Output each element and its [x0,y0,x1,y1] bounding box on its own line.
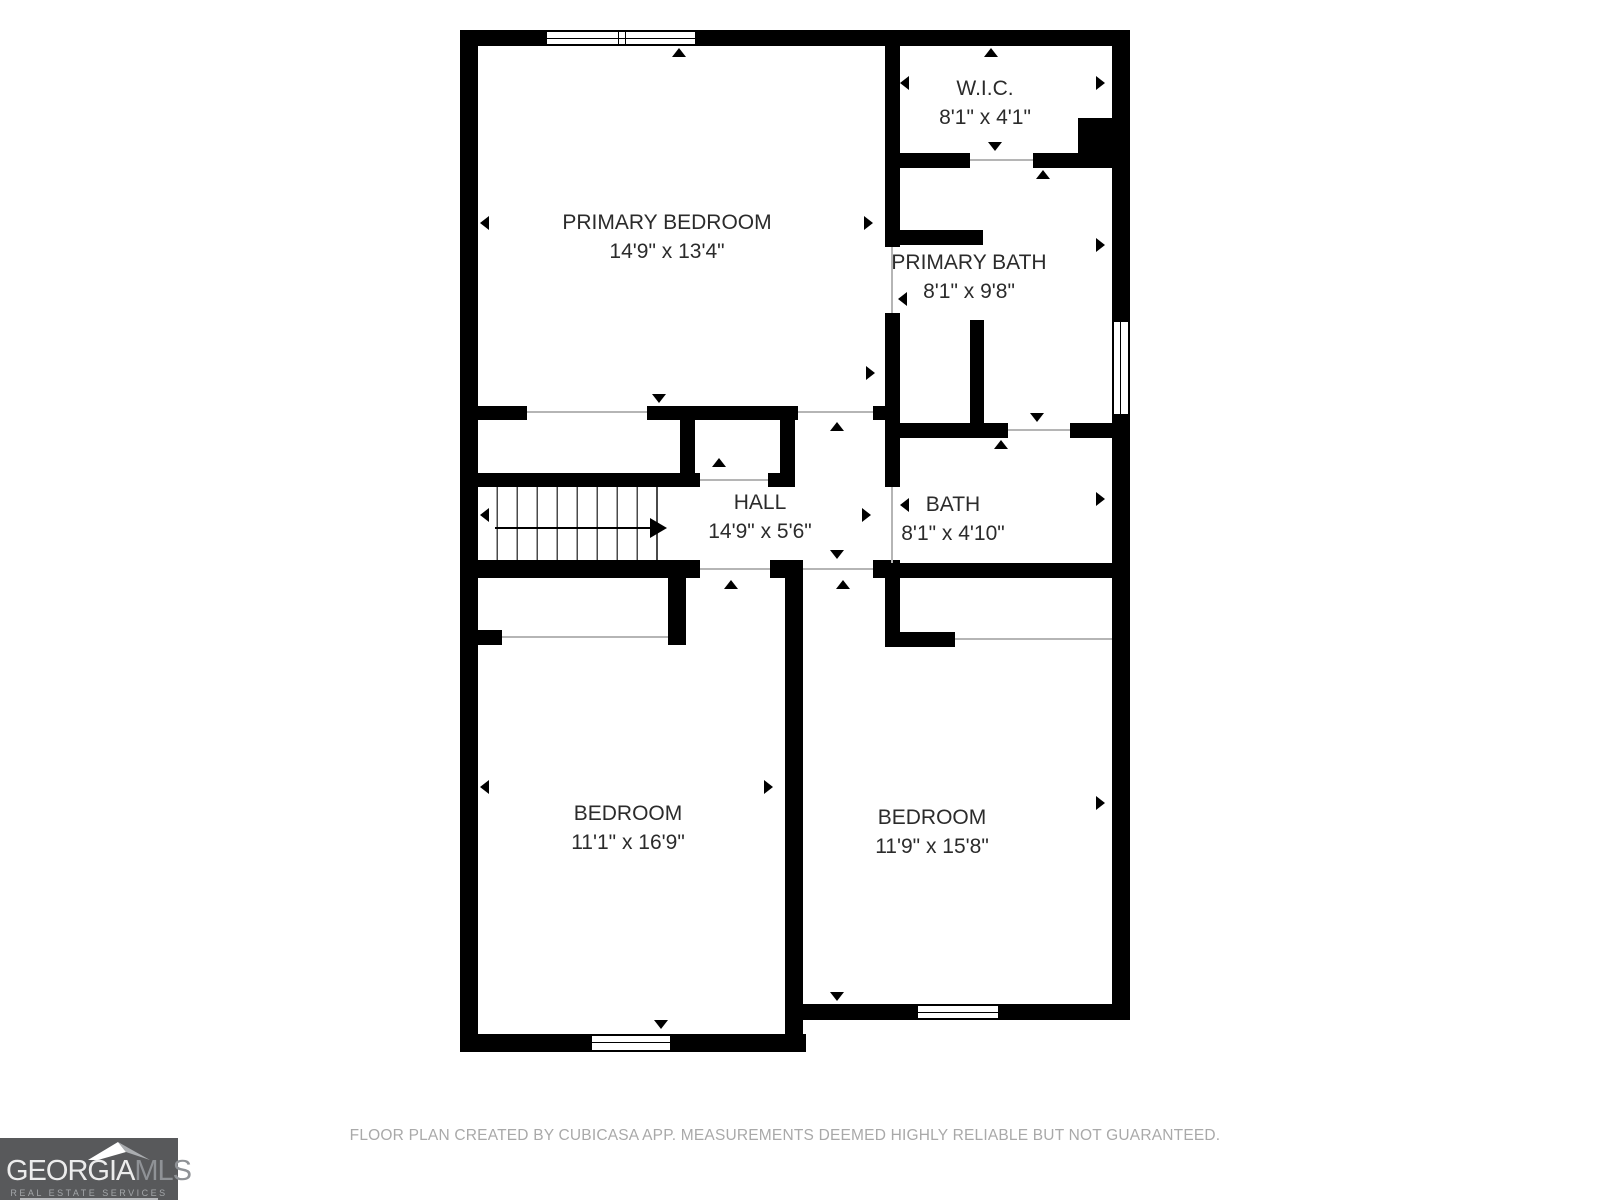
door-swing-icon [866,366,875,380]
floor-plan: PRIMARY BEDROOM 14'9" x 13'4" W.I.C. 8'1… [0,0,1600,1200]
room-dimensions: 8'1" x 4'1" [939,103,1031,132]
wall [460,630,502,645]
window [590,1034,672,1052]
wall [900,230,983,245]
wall [1070,423,1112,438]
wall [768,473,795,487]
wall [885,46,900,247]
wall [885,313,900,487]
wall [697,30,1130,46]
wall [478,473,700,487]
door-opening [955,638,1112,640]
wall-block [1078,118,1112,168]
door-swing-icon [1096,238,1105,252]
room-label-bedroom-left: BEDROOM 11'1" x 16'9" [571,799,685,857]
wall [885,423,1008,438]
stairs-direction-arrow [495,527,653,529]
door-swing-icon [830,550,844,559]
disclaimer-text: FLOOR PLAN CREATED BY CUBICASA APP. MEAS… [0,1127,1570,1145]
wall [1112,30,1130,1020]
door-swing-icon [764,780,773,794]
door-opening [803,568,873,570]
logo-brand-secondary: MLS [134,1155,191,1187]
room-label-wic: W.I.C. 8'1" x 4'1" [939,74,1031,132]
wall [885,153,970,168]
wall [900,563,1112,578]
room-label-hall: HALL 14'9" x 5'6" [708,488,812,546]
room-dimensions: 14'9" x 13'4" [562,237,771,266]
door-swing-icon [480,508,489,522]
door-swing-icon [994,440,1008,449]
wall [647,406,798,420]
door-opening [798,411,873,413]
logo-brand-text: GEORGIAMLS [6,1156,191,1186]
staircase [478,487,658,560]
door-opening [700,479,768,481]
room-name: PRIMARY BATH [891,248,1046,277]
door-swing-icon [724,580,738,589]
wall [460,30,545,46]
room-name: PRIMARY BEDROOM [562,208,771,237]
stairs-direction-arrow-head [650,518,667,538]
door-swing-icon [830,422,844,431]
logo-tagline: REAL ESTATE SERVICES [0,1188,178,1198]
room-dimensions: 11'9" x 15'8" [875,832,989,861]
door-opening [502,636,668,638]
room-dimensions: 11'1" x 16'9" [571,828,685,857]
wall [970,320,984,423]
door-opening [891,487,893,563]
wall [460,30,478,1052]
room-label-primary-bedroom: PRIMARY BEDROOM 14'9" x 13'4" [562,208,771,266]
window [545,30,697,46]
room-dimensions: 8'1" x 4'10" [901,519,1005,548]
room-name: W.I.C. [939,74,1031,103]
wall [873,560,900,578]
door-swing-icon [830,992,844,1001]
room-dimensions: 14'9" x 5'6" [708,517,812,546]
room-label-bath: BATH 8'1" x 4'10" [901,490,1005,548]
door-swing-icon [1036,170,1050,179]
door-swing-icon [672,48,686,57]
wall [460,406,527,420]
logo-brand-primary: GEORGIA [6,1155,134,1187]
wall [885,632,955,647]
room-name: BEDROOM [571,799,685,828]
door-swing-icon [712,458,726,467]
room-name: HALL [708,488,812,517]
georgia-mls-logo: GEORGIAMLS REAL ESTATE SERVICES [0,1138,178,1200]
door-swing-icon [1096,796,1105,810]
door-swing-icon [836,580,850,589]
door-swing-icon [984,48,998,57]
door-swing-icon [1096,492,1105,506]
room-name: BEDROOM [875,803,989,832]
wall [668,578,686,645]
wall [785,560,803,1052]
wall [873,406,900,420]
door-swing-icon [864,216,873,230]
door-swing-icon [988,142,1002,151]
window [1112,320,1130,416]
room-dimensions: 8'1" x 9'8" [891,277,1046,306]
door-swing-icon [654,1020,668,1029]
door-opening [1008,429,1070,431]
wall [460,560,700,578]
door-swing-icon [480,780,489,794]
door-opening [527,411,647,413]
door-swing-icon [862,508,871,522]
door-swing-icon [480,216,489,230]
door-swing-icon [1030,413,1044,422]
room-label-bedroom-right: BEDROOM 11'9" x 15'8" [875,803,989,861]
door-swing-icon [900,76,909,90]
door-swing-icon [1096,76,1105,90]
room-name: BATH [901,490,1005,519]
door-swing-icon [652,394,666,403]
window [916,1004,1000,1020]
door-opening [970,159,1033,161]
floor-plan-page: PRIMARY BEDROOM 14'9" x 13'4" W.I.C. 8'1… [0,0,1600,1200]
door-opening [700,568,770,570]
room-label-primary-bath: PRIMARY BATH 8'1" x 9'8" [891,248,1046,306]
